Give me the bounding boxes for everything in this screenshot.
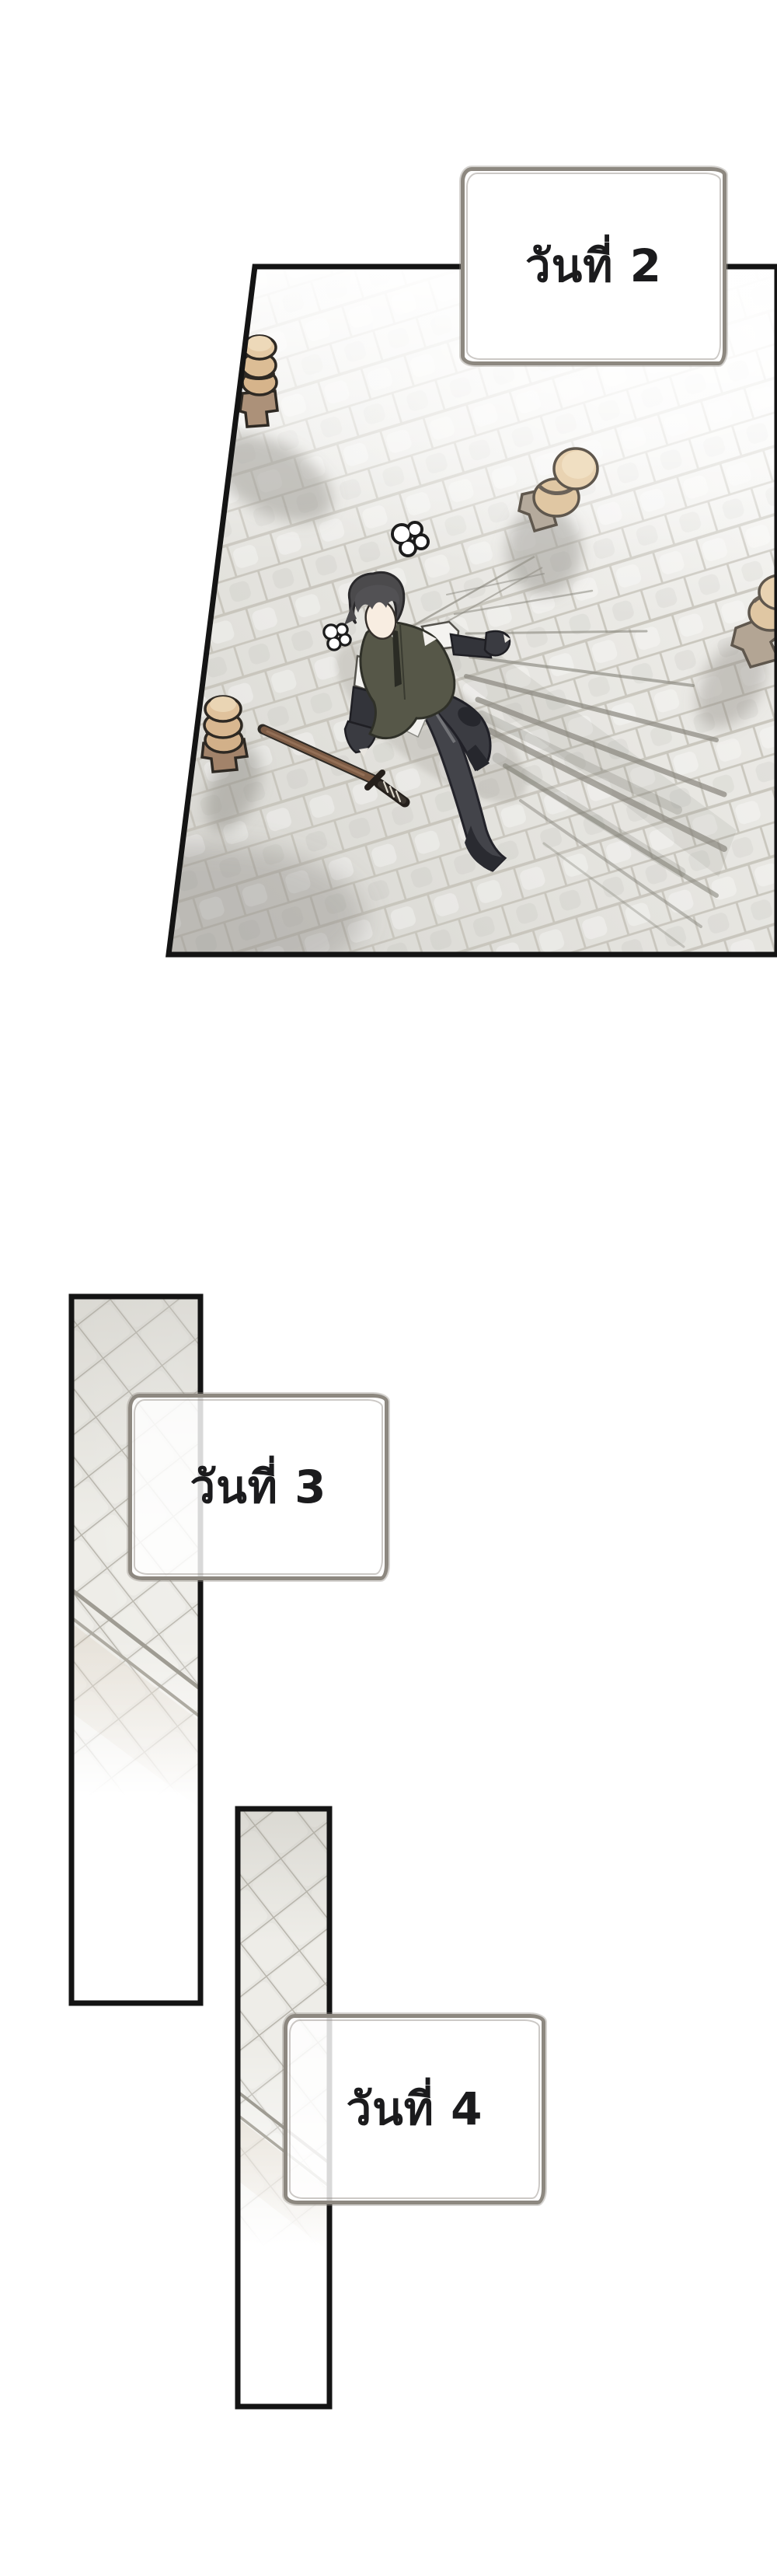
day-label-box-2: วันที่ 2 xyxy=(461,167,726,365)
day-label-text: วันที่ 2 xyxy=(525,236,662,296)
comic-page: วันที่ 2 วันที่ 3 วันที่ 4 xyxy=(0,0,777,2576)
day-label-box-4: วันที่ 4 xyxy=(284,2014,545,2204)
day-label-box-3: วันที่ 3 xyxy=(128,1394,388,1580)
day-label-text: วันที่ 4 xyxy=(347,2079,483,2139)
panel-day-2-art xyxy=(39,267,777,991)
breath-puff xyxy=(324,624,350,650)
day-label-text: วันที่ 3 xyxy=(190,1457,327,1517)
